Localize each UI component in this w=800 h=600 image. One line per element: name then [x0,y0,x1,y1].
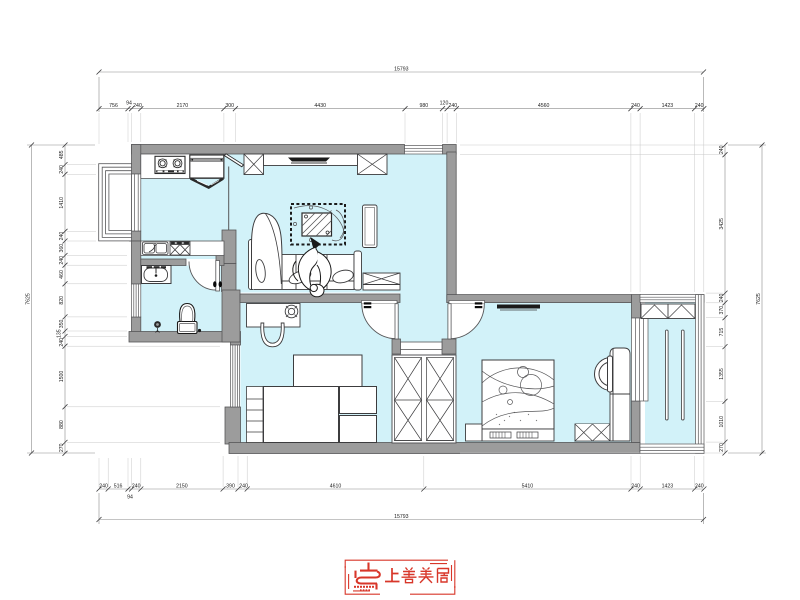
svg-text:300: 300 [225,103,234,109]
svg-text:240: 240 [719,293,725,302]
svg-text:516: 516 [114,483,123,489]
svg-text:240: 240 [59,338,65,347]
svg-text:460: 460 [59,270,65,279]
svg-text:715: 715 [719,328,725,337]
svg-text:94: 94 [127,495,133,501]
svg-text:240: 240 [133,103,142,109]
svg-text:5410: 5410 [522,483,534,489]
svg-text:2150: 2150 [176,483,188,489]
svg-text:240: 240 [59,165,65,174]
svg-text:240: 240 [59,256,65,265]
svg-text:240: 240 [99,483,108,489]
svg-text:3425: 3425 [719,218,725,230]
svg-text:370: 370 [719,306,725,315]
svg-text:270: 270 [59,443,65,452]
svg-text:350: 350 [59,319,65,328]
svg-text:820: 820 [59,296,65,305]
svg-text:1010: 1010 [719,416,725,428]
svg-text:120: 120 [440,101,449,107]
svg-text:240: 240 [448,103,457,109]
svg-text:4560: 4560 [538,103,550,109]
svg-text:270: 270 [719,443,725,452]
svg-text:1423: 1423 [662,483,674,489]
svg-text:240: 240 [631,103,640,109]
svg-text:7625: 7625 [756,293,762,305]
svg-text:15793: 15793 [394,514,409,520]
svg-text:240: 240 [631,483,640,489]
svg-text:2170: 2170 [177,103,189,109]
svg-text:4430: 4430 [314,103,326,109]
svg-text:1355: 1355 [719,368,725,380]
svg-text:240: 240 [695,483,704,489]
svg-text:390: 390 [226,483,235,489]
svg-text:240: 240 [239,483,248,489]
svg-text:880: 880 [59,420,65,429]
svg-text:360: 360 [59,244,65,253]
svg-text:135: 135 [57,329,63,338]
svg-text:15793: 15793 [394,66,409,72]
svg-text:7625: 7625 [26,293,32,305]
svg-text:1410: 1410 [59,197,65,209]
svg-text:4610: 4610 [330,483,342,489]
svg-text:1423: 1423 [662,103,674,109]
svg-text:94: 94 [126,101,132,107]
svg-text:240: 240 [59,232,65,241]
svg-text:240: 240 [695,103,704,109]
svg-text:980: 980 [419,103,428,109]
svg-text:240: 240 [719,145,725,154]
svg-text:1500: 1500 [59,371,65,383]
svg-text:485: 485 [59,150,65,159]
svg-text:240: 240 [132,483,141,489]
svg-text:756: 756 [109,103,118,109]
